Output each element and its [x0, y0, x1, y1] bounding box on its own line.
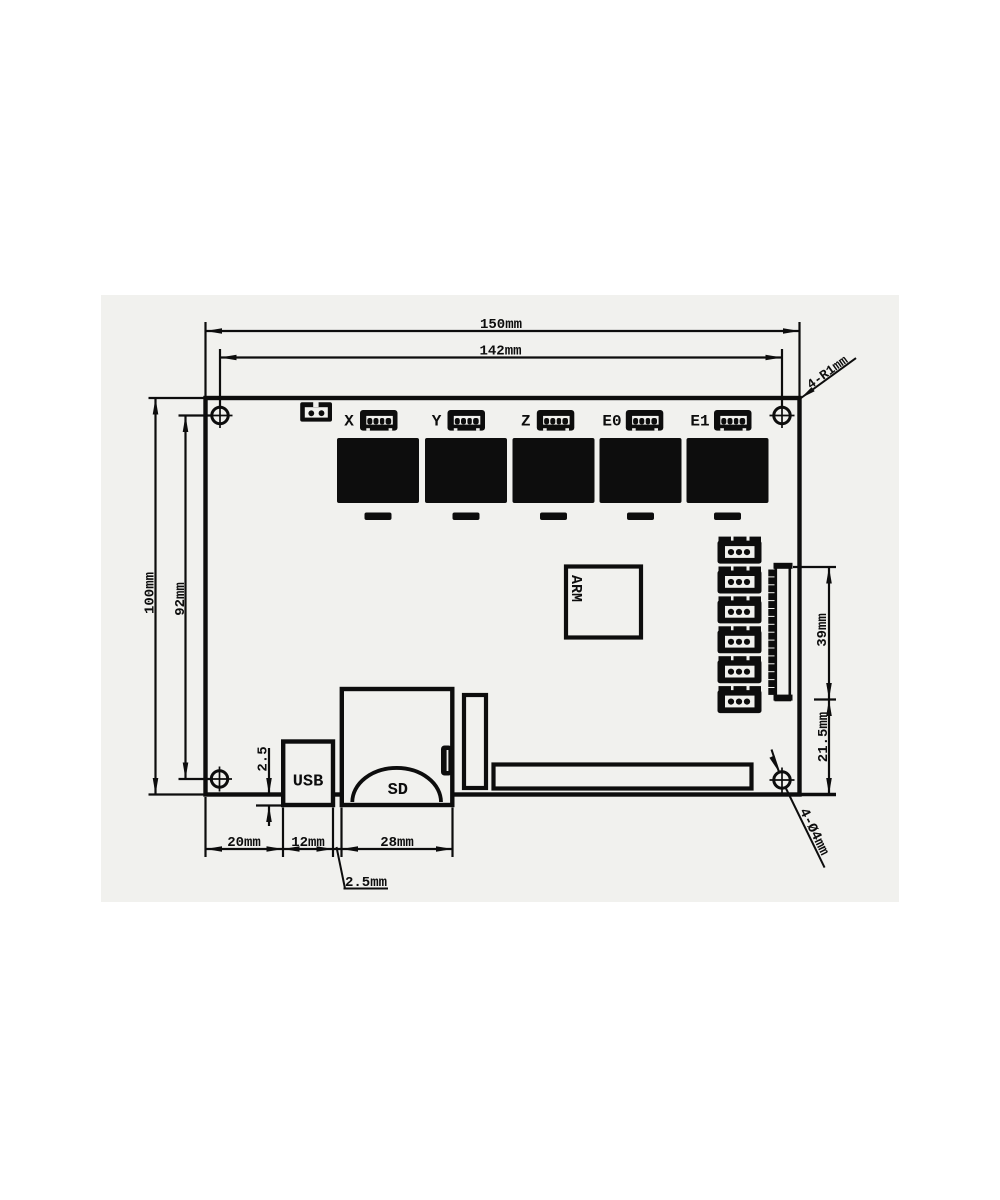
svg-text:E1: E1 [690, 413, 709, 431]
svg-text:20mm: 20mm [227, 835, 261, 851]
svg-text:21.5mm: 21.5mm [816, 712, 832, 762]
svg-text:28mm: 28mm [380, 835, 414, 851]
svg-text:39mm: 39mm [815, 613, 831, 647]
svg-text:Z: Z [521, 413, 531, 431]
svg-text:E0: E0 [602, 413, 621, 431]
svg-text:ARM: ARM [567, 575, 584, 602]
svg-text:150mm: 150mm [480, 317, 522, 333]
svg-text:X: X [344, 413, 354, 431]
svg-text:12mm: 12mm [291, 835, 325, 851]
svg-text:92mm: 92mm [173, 582, 189, 616]
svg-text:142mm: 142mm [479, 344, 521, 360]
svg-text:Y: Y [432, 413, 442, 431]
svg-text:100mm: 100mm [143, 572, 159, 614]
svg-text:2.5mm: 2.5mm [345, 875, 387, 891]
svg-text:USB: USB [293, 773, 324, 792]
svg-text:2.5: 2.5 [256, 746, 272, 771]
svg-text:SD: SD [388, 781, 408, 800]
